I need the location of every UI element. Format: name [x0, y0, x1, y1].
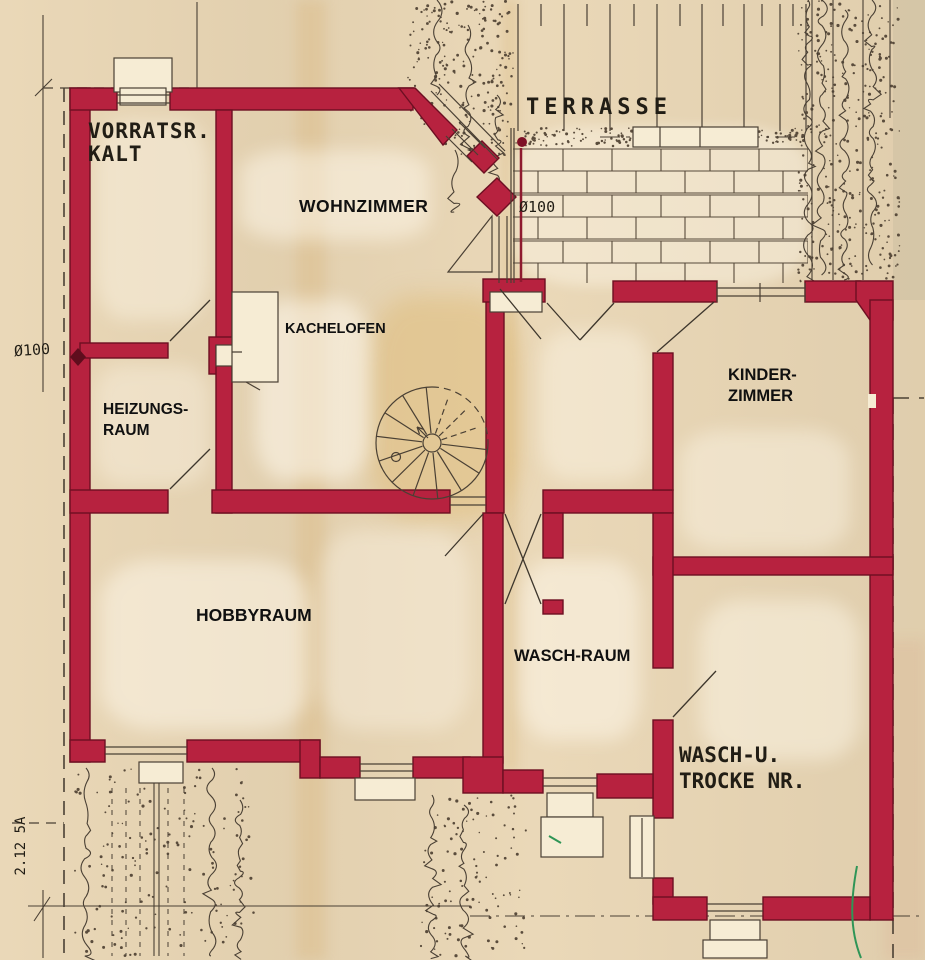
wall-north: [170, 88, 413, 110]
vegetation-squiggle: [232, 800, 245, 959]
terrace-drain-channel: [633, 127, 758, 147]
label-wasch-trockenraum: WASCH-U. TROCKE NR.: [679, 742, 805, 794]
label-kinderzimmer-line2: ZIMMER: [728, 386, 797, 407]
property-line-east: [893, 398, 924, 958]
label-hobbyraum: HOBBYRAUM: [196, 605, 312, 626]
label-kachelofen: KACHELOFEN: [285, 321, 386, 337]
chimney-vent: [114, 58, 172, 92]
wall-wasch-south: [503, 770, 543, 793]
spiral-staircase: [376, 387, 488, 499]
wall-terrace-south: [805, 281, 860, 302]
wall-heizung-top: [80, 343, 168, 358]
wall-trockenraum-south: [763, 897, 870, 920]
wall-wasch-east: [653, 720, 673, 818]
window-sill: [703, 940, 767, 958]
wall-entrance-corner: [477, 178, 516, 216]
window-sill: [139, 762, 183, 783]
wall-terrace-south: [613, 281, 717, 302]
garden-dashed-lines: [112, 788, 184, 956]
label-wasch-trockenraum-line2: TROCKE NR.: [679, 768, 805, 794]
label-heizungsraum: HEIZUNGS- RAUM: [103, 399, 188, 441]
wall-wasch-stub: [543, 600, 563, 614]
vegetation-squiggle: [203, 768, 217, 956]
wall-hobby-south: [70, 740, 105, 762]
window-sill: [710, 920, 760, 940]
wall-north: [70, 88, 117, 110]
floor-plan-page: VORRATSR. KALT TERRASSE WOHNZIMMER KACHE…: [0, 0, 925, 960]
vegetation-squiggle: [448, 150, 460, 212]
label-waschraum: WASCH-RAUM: [514, 647, 630, 666]
label-vorratsraum-line1: VORRATSR.: [88, 120, 211, 143]
stair-center-post: [423, 434, 441, 452]
wall-kinderzimmer-west: [653, 353, 673, 490]
label-terrasse: TERRASSE: [526, 95, 672, 120]
drain-point: [517, 137, 527, 147]
wall-heizung-bottom: [70, 490, 168, 513]
window-sill: [355, 778, 415, 800]
wall-entrance-diagonal: [399, 88, 457, 145]
wall-step: [463, 757, 503, 793]
annotation-pipe-diameter-terrace: Ø100: [519, 198, 555, 216]
dashed-dimension-line: [12, 88, 196, 823]
wall-hobby-south: [320, 757, 360, 778]
wall-notch: [868, 394, 876, 408]
wall-wasch-south: [597, 774, 653, 798]
kachelofen-stove: [232, 292, 278, 382]
label-vorratsraum-line2: KALT: [88, 143, 211, 166]
label-kinderzimmer: KINDER- ZIMMER: [728, 365, 797, 407]
label-heizungsraum-line2: RAUM: [103, 420, 188, 441]
wall-vorrats-divider: [216, 110, 232, 346]
label-kinderzimmer-line1: KINDER-: [728, 365, 797, 386]
terrace-brick-paving: [513, 148, 808, 283]
vegetation-squiggle: [425, 795, 441, 959]
wall-hobby-south: [413, 757, 470, 778]
entrance-steps: [431, 84, 505, 272]
label-heizungsraum-line1: HEIZUNGS-: [103, 399, 188, 420]
wall-east: [870, 300, 893, 920]
annotation-pipe-diameter-left: Ø100: [13, 340, 50, 360]
label-wasch-trockenraum-line1: WASCH-U.: [679, 742, 805, 768]
wall-step: [300, 740, 320, 778]
wall-trockenraum-south: [653, 897, 707, 920]
label-vorratsraum: VORRATSR. KALT: [88, 120, 211, 166]
wall-wasch-east: [653, 513, 673, 668]
wall-heizung-east: [216, 346, 232, 513]
window-sill: [547, 793, 593, 817]
wall-hobby-east: [483, 513, 503, 763]
wall-wasch-stub: [543, 513, 563, 558]
wall-west: [70, 88, 90, 762]
wall-hall-west: [486, 295, 504, 513]
annotation-margin-note: 2.12 5A: [13, 781, 29, 911]
label-wohnzimmer: WOHNZIMMER: [299, 196, 428, 217]
vegetation-squiggle: [459, 805, 474, 960]
wall-kinderzimmer-bottom: [653, 557, 893, 575]
vegetation-squiggle: [838, 10, 849, 280]
wall-hall-bottom: [543, 490, 673, 513]
